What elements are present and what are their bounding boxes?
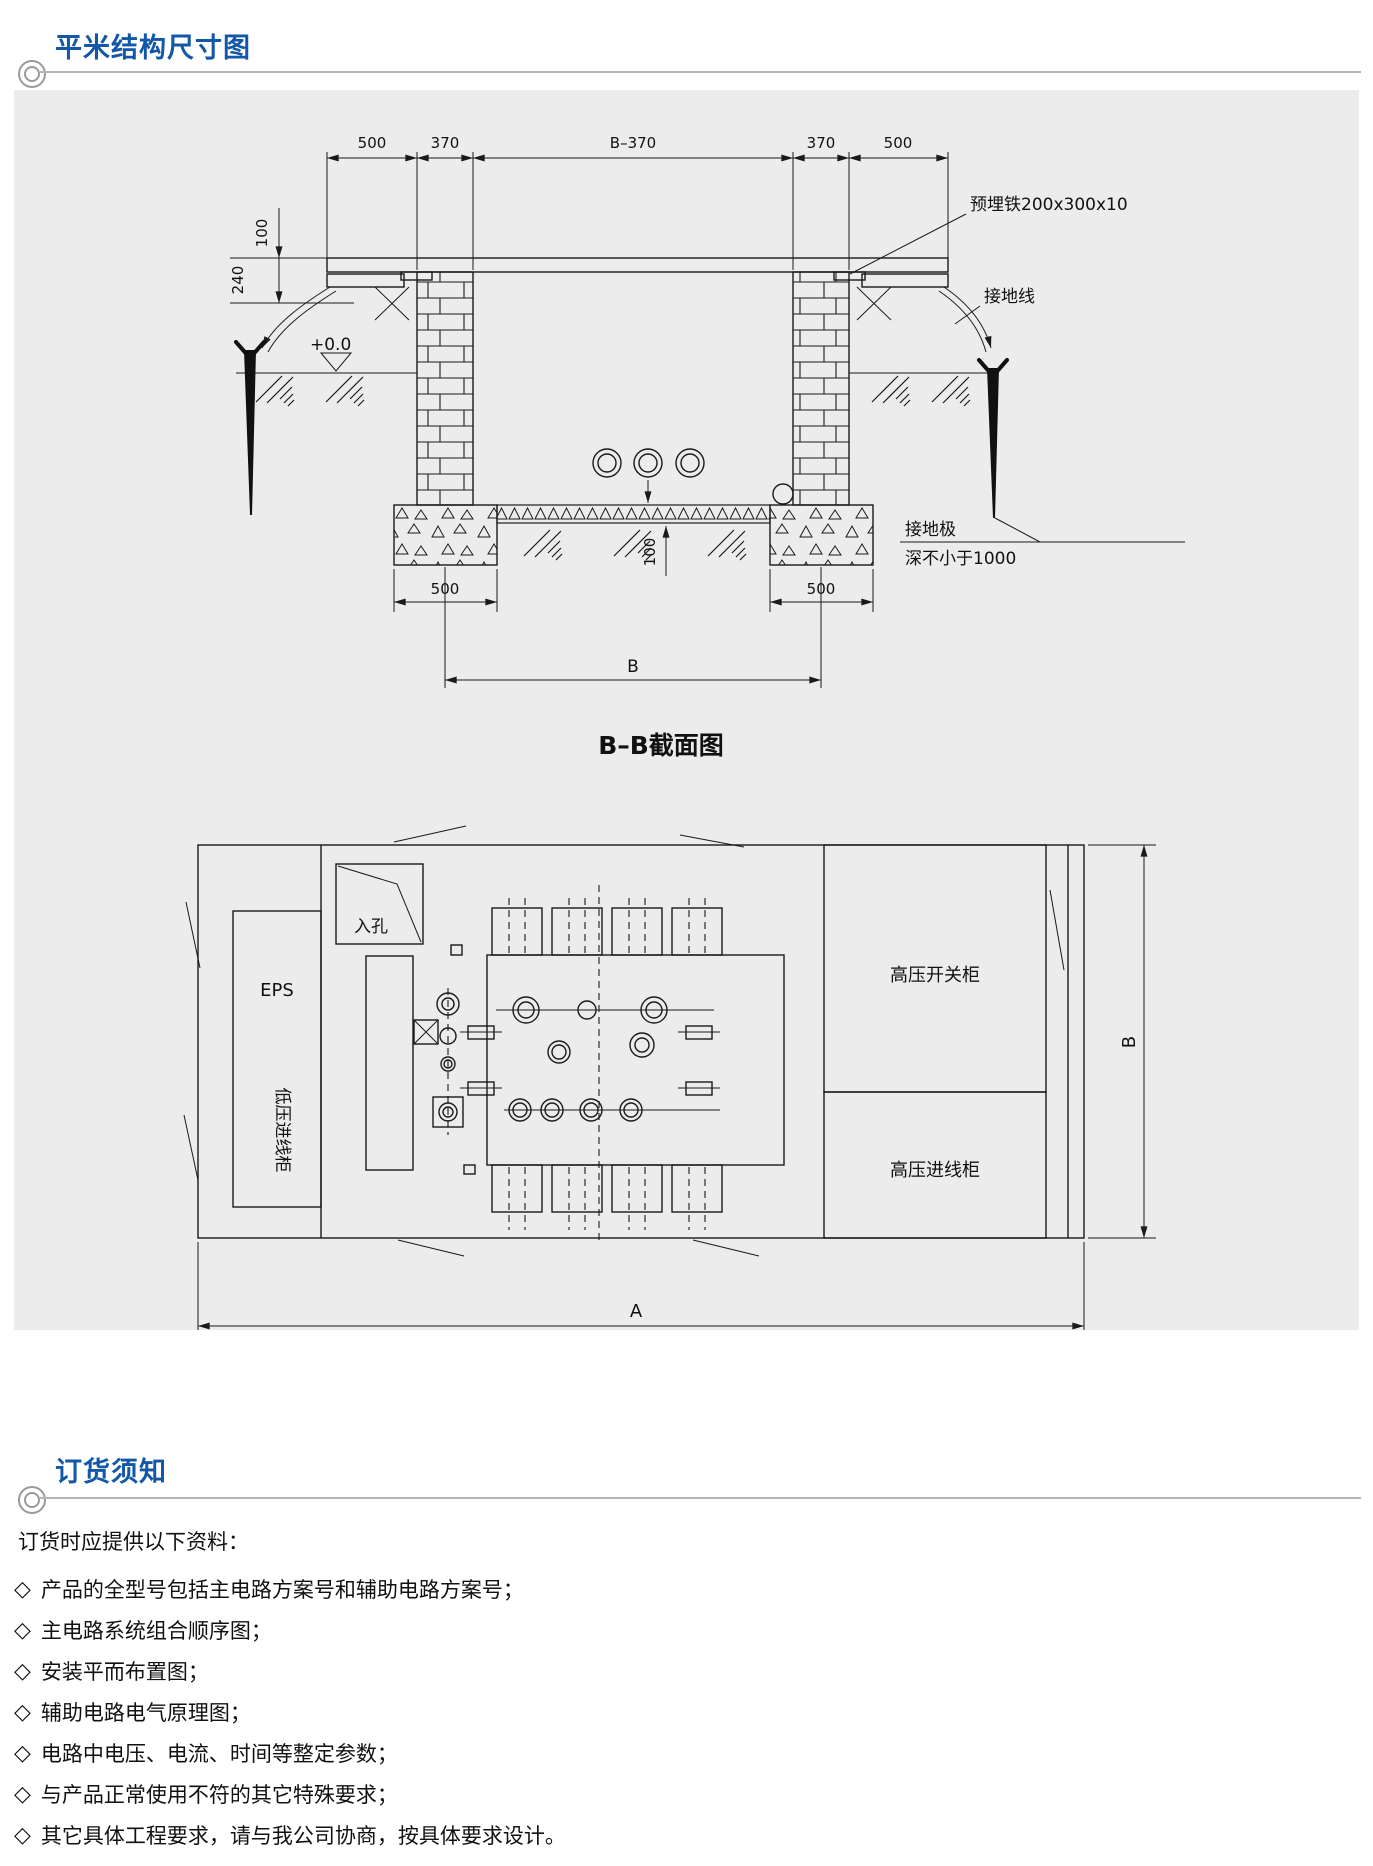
dim-500-bottom-left: 500 bbox=[431, 580, 460, 598]
ground-rod-left bbox=[236, 342, 264, 515]
note-item: ◇ 与产品正常使用不符的其它特殊要求； bbox=[14, 1784, 1354, 1806]
dim-top-500-left: 500 bbox=[358, 134, 387, 152]
plan-view-drawing: EPS 低压进线柜 入孔 bbox=[184, 826, 1156, 1330]
hv-incoming-label: 高压进线柜 bbox=[890, 1160, 980, 1181]
dim-B-plan: B bbox=[1119, 1036, 1140, 1048]
section-marker-icon-2 bbox=[18, 1486, 46, 1514]
manhole-label: 入孔 bbox=[354, 917, 388, 937]
cross-section-caption: B–B截面图 bbox=[598, 731, 724, 760]
section-marker-inner-ring bbox=[24, 66, 40, 82]
section-title-ordering: 订货须知 bbox=[55, 1450, 167, 1489]
section-divider bbox=[40, 71, 1361, 73]
foundation-block-left bbox=[394, 505, 497, 565]
gravel-layer bbox=[497, 505, 770, 523]
diamond-bullet-icon: ◇ bbox=[14, 1825, 31, 1847]
roof-slab bbox=[327, 258, 948, 272]
brick-pillar-left bbox=[417, 272, 473, 505]
lv-incoming-label: 低压进线柜 bbox=[272, 1088, 292, 1173]
section-divider-2 bbox=[40, 1497, 1361, 1499]
diamond-bullet-icon: ◇ bbox=[14, 1620, 31, 1642]
diamond-bullet-icon: ◇ bbox=[14, 1784, 31, 1806]
note-item-text: 电路中电压、电流、时间等整定参数； bbox=[41, 1744, 398, 1765]
transformer bbox=[414, 885, 784, 1240]
brick-pillar-right bbox=[793, 272, 849, 505]
diamond-bullet-icon: ◇ bbox=[14, 1579, 31, 1601]
note-item: ◇ 安装平而布置图； bbox=[14, 1661, 1354, 1683]
lv-duct bbox=[366, 956, 413, 1170]
dim-A-plan: A bbox=[630, 1301, 643, 1322]
diamond-bullet-icon: ◇ bbox=[14, 1661, 31, 1683]
dim-top-b370: B–370 bbox=[610, 134, 656, 152]
hv-switch-label: 高压开关柜 bbox=[890, 965, 980, 986]
level-mark-label: +0.0 bbox=[310, 335, 351, 355]
notes-intro: 订货时应提供以下资料： bbox=[18, 1532, 1354, 1553]
dim-240: 240 bbox=[229, 266, 247, 295]
diamond-bullet-icon: ◇ bbox=[14, 1743, 31, 1765]
cross-section-drawing: 500 370 B–370 370 500 100 240 +0.0 bbox=[229, 134, 1185, 760]
cable-pipes bbox=[593, 449, 704, 477]
section-marker-icon bbox=[18, 60, 46, 88]
foundation-block-right bbox=[770, 505, 873, 565]
note-item-text: 辅助电路电气原理图； bbox=[41, 1703, 251, 1724]
structure-drawing: 500 370 B–370 370 500 100 240 +0.0 bbox=[14, 90, 1359, 1330]
note-item: ◇ 产品的全型号包括主电路方案号和辅助电路方案号； bbox=[14, 1579, 1354, 1601]
note-item: ◇ 其它具体工程要求，请与我公司协商，按具体要求设计。 bbox=[14, 1825, 1354, 1847]
embedded-iron-label: 预埋铁200x300x10 bbox=[970, 195, 1128, 215]
diagram-panel: 500 370 B–370 370 500 100 240 +0.0 bbox=[14, 90, 1359, 1330]
note-item: ◇ 电路中电压、电流、时间等整定参数； bbox=[14, 1743, 1354, 1765]
dim-top-370-right: 370 bbox=[807, 134, 836, 152]
ordering-notes: 订货时应提供以下资料： ◇ 产品的全型号包括主电路方案号和辅助电路方案号； ◇ … bbox=[14, 1532, 1354, 1866]
ground-wire-label: 接地线 bbox=[984, 287, 1035, 307]
ground-rod-right bbox=[979, 360, 1007, 518]
dim-top-370-left: 370 bbox=[431, 134, 460, 152]
eps-label: EPS bbox=[260, 980, 294, 1001]
note-item: ◇ 辅助电路电气原理图； bbox=[14, 1702, 1354, 1724]
dim-B-section: B bbox=[627, 657, 639, 677]
note-item-text: 产品的全型号包括主电路方案号和辅助电路方案号； bbox=[41, 1580, 524, 1601]
ground-rod-label-line1: 接地极 bbox=[905, 520, 956, 540]
note-item-text: 安装平而布置图； bbox=[41, 1662, 209, 1683]
note-item-text: 主电路系统组合顺序图； bbox=[41, 1621, 272, 1642]
dim-500-bottom-right: 500 bbox=[807, 580, 836, 598]
dim-top-500-right: 500 bbox=[884, 134, 913, 152]
note-item: ◇ 主电路系统组合顺序图； bbox=[14, 1620, 1354, 1642]
dim-100-bottom: 100 bbox=[641, 538, 659, 567]
ground-rod-label-line2: 深不小于1000 bbox=[905, 549, 1016, 569]
diamond-bullet-icon: ◇ bbox=[14, 1702, 31, 1724]
section-marker-inner-ring-2 bbox=[24, 1492, 40, 1508]
section-title-structure: 平米结构尺寸图 bbox=[55, 26, 251, 65]
note-item-text: 与产品正常使用不符的其它特殊要求； bbox=[41, 1785, 398, 1806]
dim-100-top: 100 bbox=[253, 219, 271, 248]
note-item-text: 其它具体工程要求，请与我公司协商，按具体要求设计。 bbox=[41, 1826, 566, 1847]
